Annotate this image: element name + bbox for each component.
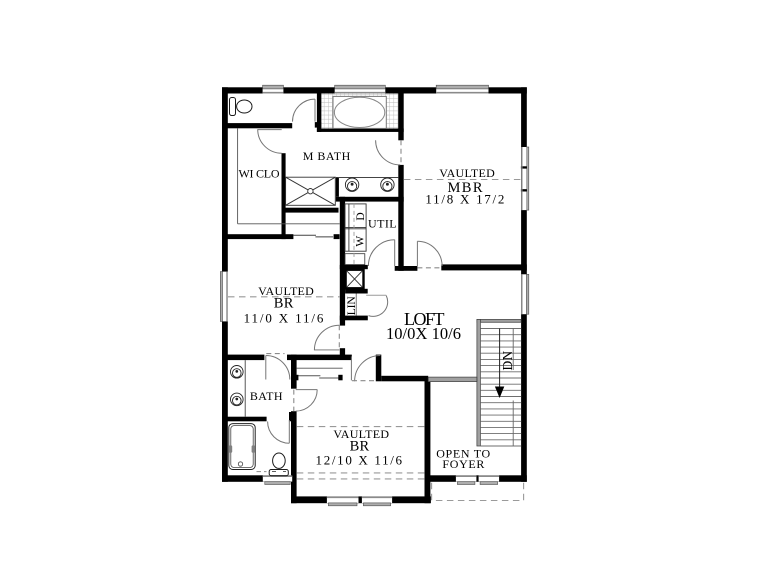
svg-text:11/0 X 11/6: 11/0 X 11/6: [244, 310, 324, 325]
svg-text:12/10 X 11/6: 12/10 X 11/6: [316, 453, 403, 468]
svg-text:W: W: [355, 236, 367, 247]
svg-text:11/8 X 17/2: 11/8 X 17/2: [425, 192, 504, 207]
svg-text:UTIL: UTIL: [368, 217, 397, 231]
svg-text:10/0X 10/6: 10/0X 10/6: [386, 324, 461, 343]
svg-text:D: D: [355, 212, 367, 220]
svg-text:WI CLO: WI CLO: [239, 166, 280, 180]
svg-text:FOYER: FOYER: [442, 457, 484, 471]
svg-text:LIN: LIN: [346, 296, 358, 316]
svg-text:DN: DN: [500, 350, 515, 370]
svg-text:VAULTED: VAULTED: [439, 166, 495, 180]
svg-text:BR: BR: [274, 296, 294, 312]
svg-text:BATH: BATH: [250, 389, 283, 403]
svg-text:M BATH: M BATH: [303, 149, 351, 163]
